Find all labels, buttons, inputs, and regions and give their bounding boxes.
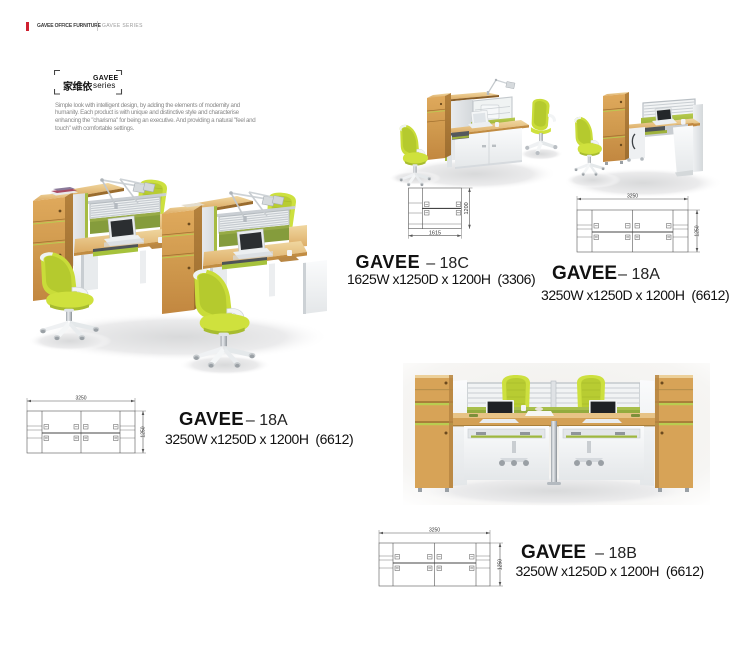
svg-text:3250: 3250 — [429, 528, 440, 534]
svg-text:1250: 1250 — [498, 559, 504, 570]
svg-text:3250: 3250 — [75, 396, 86, 402]
svg-text:3250: 3250 — [627, 194, 638, 200]
svg-text:1200: 1200 — [464, 202, 470, 214]
svg-text:1615: 1615 — [429, 231, 441, 237]
svg-text:1250: 1250 — [141, 426, 147, 437]
svg-text:1250: 1250 — [695, 225, 701, 236]
